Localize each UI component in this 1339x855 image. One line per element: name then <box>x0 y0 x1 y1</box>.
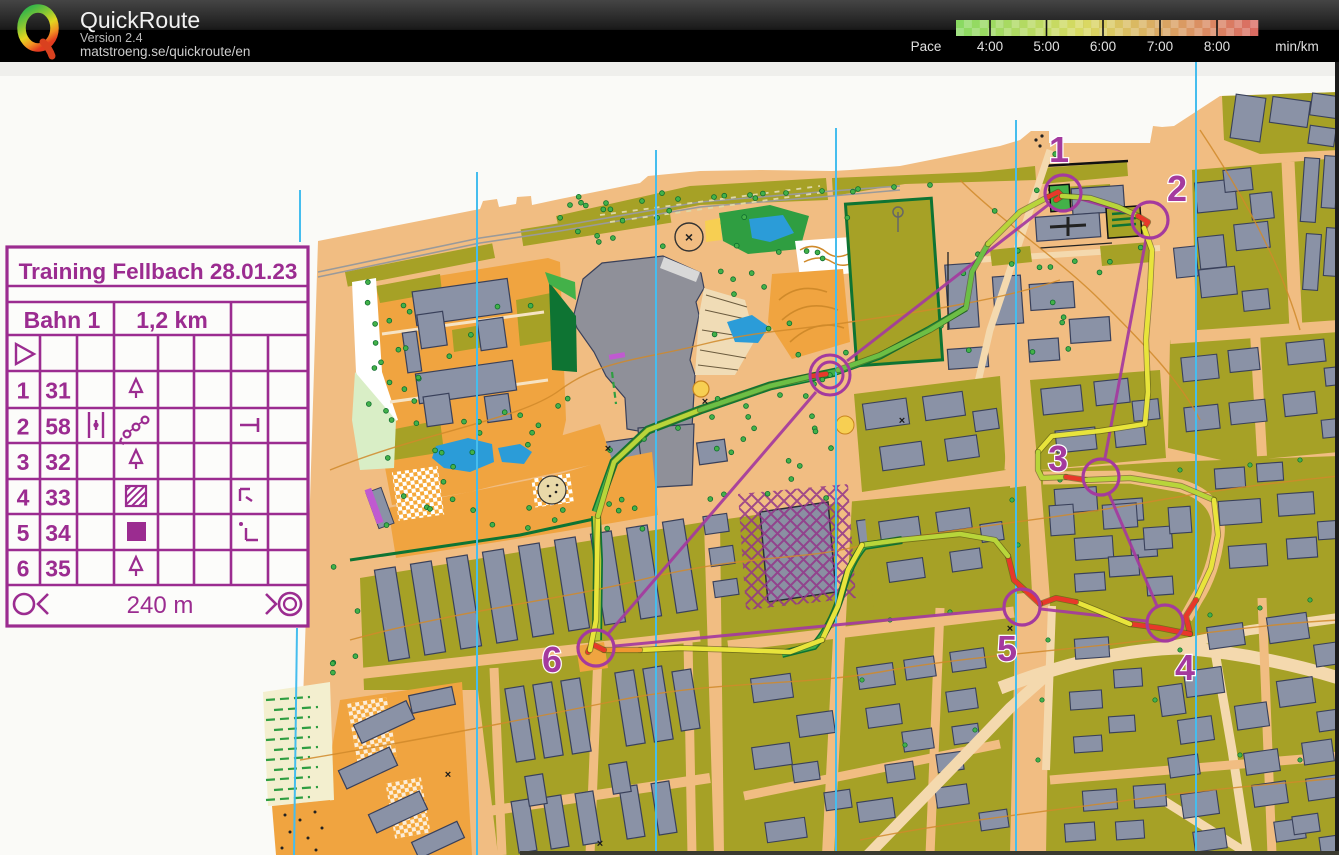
svg-text:6: 6 <box>542 639 562 680</box>
svg-text:1: 1 <box>1049 129 1069 170</box>
svg-text:4:00: 4:00 <box>977 39 1003 54</box>
svg-text:35: 35 <box>45 556 71 582</box>
svg-text:QuickRoute: QuickRoute <box>80 7 200 33</box>
svg-text:6: 6 <box>17 556 30 582</box>
svg-text:×: × <box>605 443 611 455</box>
svg-text:Pace: Pace <box>911 39 942 54</box>
svg-text:5: 5 <box>17 520 30 546</box>
svg-text:1,2 km: 1,2 km <box>136 307 208 333</box>
svg-text:min/km: min/km <box>1275 39 1319 54</box>
svg-text:3: 3 <box>1048 438 1068 479</box>
svg-text:33: 33 <box>45 485 71 511</box>
svg-text:31: 31 <box>45 378 71 404</box>
svg-text:Version 2.4: Version 2.4 <box>80 31 143 45</box>
svg-text:3: 3 <box>17 449 30 475</box>
svg-text:4: 4 <box>1175 647 1195 688</box>
svg-text:7:00: 7:00 <box>1147 39 1173 54</box>
svg-text:2: 2 <box>1167 168 1187 209</box>
svg-text:Bahn 1: Bahn 1 <box>24 307 101 333</box>
svg-text:matstroeng.se/quickroute/en: matstroeng.se/quickroute/en <box>80 44 250 59</box>
svg-text:×: × <box>685 229 693 245</box>
svg-text:4: 4 <box>17 485 30 511</box>
svg-text:8:00: 8:00 <box>1204 39 1230 54</box>
svg-text:×: × <box>899 415 905 427</box>
svg-text:34: 34 <box>45 520 71 546</box>
svg-text:×: × <box>597 838 603 850</box>
svg-text:6:00: 6:00 <box>1090 39 1116 54</box>
svg-text:240 m: 240 m <box>127 592 194 619</box>
svg-text:32: 32 <box>45 449 71 475</box>
svg-text:58: 58 <box>45 414 71 440</box>
svg-text:5: 5 <box>997 628 1017 669</box>
svg-text:Training Fellbach 28.01.23: Training Fellbach 28.01.23 <box>19 259 298 284</box>
svg-text:5:00: 5:00 <box>1033 39 1059 54</box>
svg-text:1: 1 <box>17 378 30 404</box>
svg-text:2: 2 <box>17 414 30 440</box>
svg-text:×: × <box>445 769 451 781</box>
